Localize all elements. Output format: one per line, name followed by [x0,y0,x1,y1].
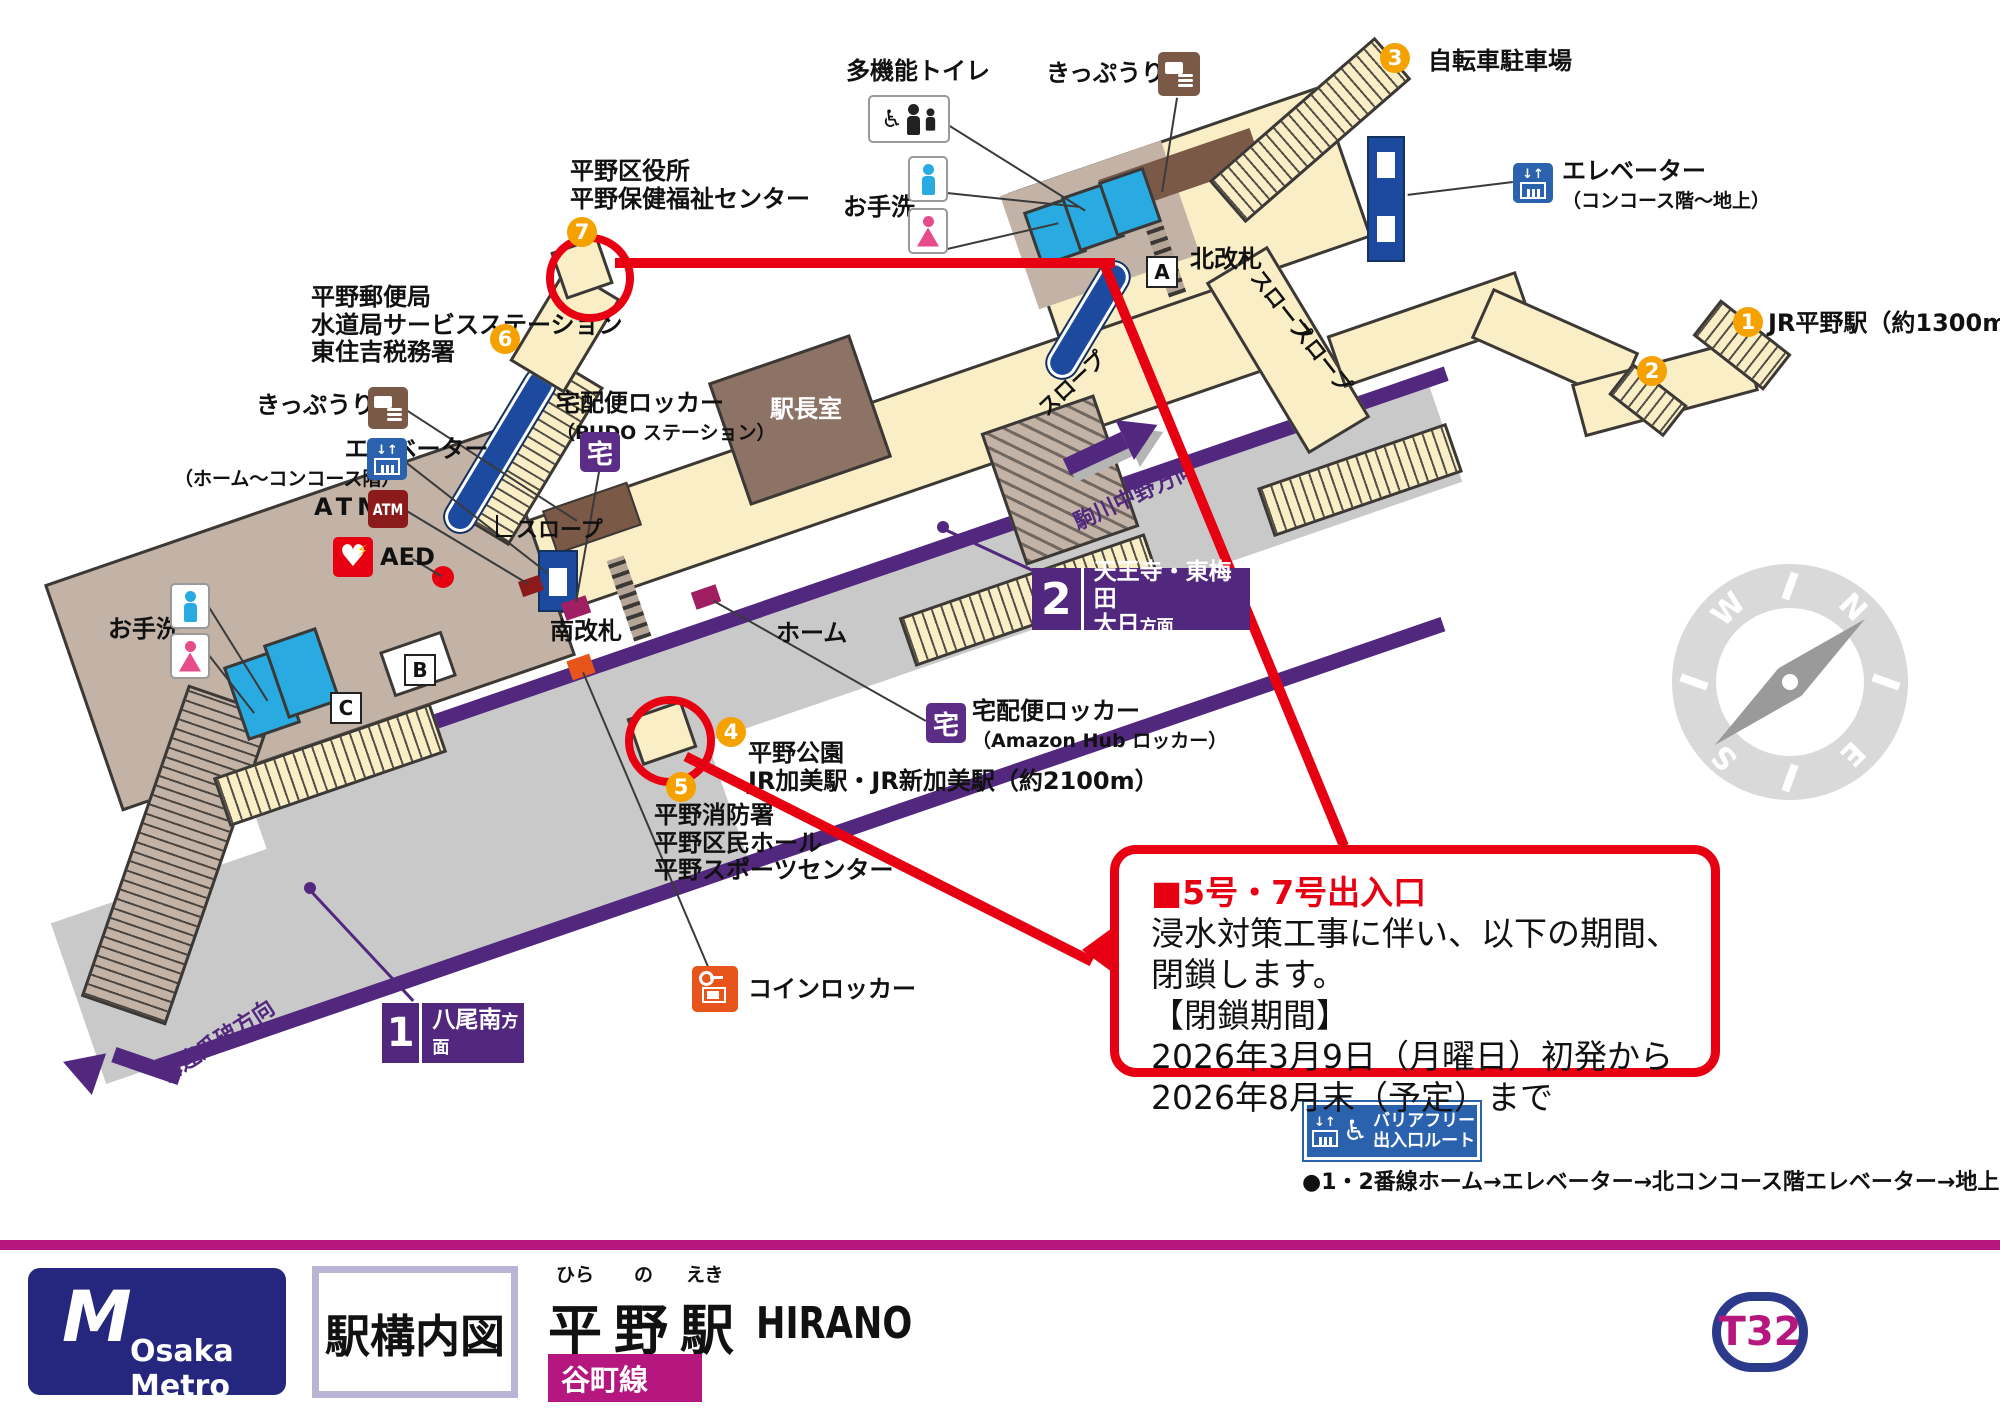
atm-icon-text: ATM [373,500,403,519]
amazon-locker-marker [691,584,721,609]
aed-icon: ♥ ⚡ [333,537,373,577]
exit5-line2: 平野区民ホール [654,829,822,857]
station-furigana-2: の [634,1260,653,1287]
ticket-machine-icon-north [1158,52,1200,96]
key-icon [699,971,714,986]
exit4-destinations: 平野公園 JR加美駅・JR新加美駅（約2100m） [748,740,1159,795]
elevator-glyph: ↓↑ [1312,1116,1338,1147]
exit6-line3: 東住吉税務署 [311,338,455,366]
gate-b-badge: B [404,654,436,686]
station-office-label: 駅長室 [770,396,842,424]
aed-marker [432,566,454,588]
track1-line1: 八尾南方面 [432,1007,524,1060]
closure-line-exit7 [615,258,1115,268]
notice-tail [1082,928,1112,972]
ticket-machine-icon-south [368,387,408,429]
leader-line [1408,181,1513,196]
pudo-line1: 宅配便ロッカー [556,389,724,417]
compass-needle-hub [1782,674,1798,690]
elevator-ne-line1: エレベーター [1562,157,1706,185]
exit7-circle: 7 [567,217,597,247]
compass-letter-n: N [1831,586,1874,629]
elevator-ne-label: エレベーター （コンコース階～地上） [1562,158,1770,213]
station-code-badge: T32 [1712,1292,1808,1372]
track2-number: 2 [1032,568,1084,630]
line-name-label: 谷町線 [548,1357,648,1399]
closure-notice-line: 【閉鎖期間】 [1151,995,1711,1036]
barrier-free-route-text: ●1・2番線ホーム→エレベーター→北コンコース階エレベーター→地上 [1302,1170,1999,1195]
elevator-window [1377,152,1395,178]
compass-tick [1781,763,1798,792]
restroom-female-icon-north [908,208,948,254]
exit5-closed-ring [625,696,715,786]
closure-notice-line: 2026年8月末（予定）まで [1151,1077,1711,1118]
compass-icon: N E S W [1672,564,1908,800]
elevator-icon-northeast: ↓↑ [1513,163,1553,203]
exit1-circle: 1 [1733,307,1763,337]
slope-elbow [496,515,512,537]
elevator-window [1377,216,1395,242]
exit4-line2: JR加美駅・JR新加美駅（約2100m） [748,767,1159,795]
suitcase-icon [702,987,726,1003]
exit1-destination-label: JR平野駅（約1300m） [1768,310,2000,338]
multi-toilet-icon: ♿ [868,95,950,143]
osaka-metro-m-icon: M [62,1276,132,1358]
compass-tick [1871,673,1900,690]
exit5-line1: 平野消防署 [654,801,774,829]
wheelchair-icon: ♿ [881,107,903,131]
exit6-line1: 平野郵便局 [311,283,431,311]
compass-letter-e: E [1833,734,1872,773]
ticket-card-glyph [1165,60,1193,88]
baby-icon [926,108,935,130]
station-furigana-3: えき [686,1260,723,1287]
coin-locker-icon [692,966,738,1012]
footer-separator [0,1240,2000,1250]
exit7-closed-ring [546,234,634,322]
elevator-glyph: ↓↑ [1520,168,1546,199]
closure-notice-line: 浸水対策工事に伴い、以下の期間、閉鎖します。 [1151,913,1711,995]
exit5-line3: 平野スポーツセンター [654,856,894,884]
female-icon [179,641,201,672]
closure-notice: ■5号・7号出入口 浸水対策工事に伴い、以下の期間、閉鎖します。 【閉鎖期間】 … [1110,845,1720,1077]
elevator-ne-line2: （コンコース階～地上） [1562,190,1770,212]
barrier-free-line2: 出入口ルート [1373,1131,1475,1151]
wheelchair-icon: ♿ [1343,1117,1368,1145]
track1-destination: 八尾南方面 [422,1003,524,1063]
pudo-locker-icon: 宅 [580,432,620,472]
multi-toilet-label: 多機能トイレ [846,58,990,86]
slope-label-4-text: スロープ [516,518,603,543]
doc-type-label: 駅構内図 [325,1300,505,1365]
slope-label-4: スロープ [496,512,603,544]
exit4-circle: 4 [716,717,746,747]
compass-tick [1781,571,1798,600]
exit7-line2: 平野保健福祉センター [570,185,810,213]
track2-line2: 大日方面 [1094,612,1250,638]
bicycle-parking-label: 自転車駐車場 [1428,48,1572,76]
exit6-circle: 6 [490,324,520,354]
track1-direction-box: 1 八尾南方面 [382,1003,524,1063]
exit2-circle: 2 [1637,356,1667,386]
elevator-glyph: ↓↑ [374,444,400,475]
taku-glyph: 宅 [933,705,959,742]
elevator-icon-southwest: ↓↑ [367,438,407,480]
track2-line1: 天王寺・東梅田 [1094,559,1250,612]
exit3-circle: 3 [1380,43,1410,73]
line-name-box: 谷町線 [548,1354,702,1402]
bolt-icon: ⚡ [357,541,368,560]
atm-icon: ATM [368,490,408,528]
exit7-line1: 平野区役所 [570,157,690,185]
doc-type-box: 駅構内図 [312,1266,518,1398]
elevator-window [549,568,567,596]
compass-tick [1679,673,1708,690]
restroom-male-icon-north [908,156,948,202]
ticket-card-glyph [374,394,402,422]
south-gate-label: 南改札 [550,618,622,646]
platform-label: ホーム [776,620,847,648]
osaka-metro-wordmark: Osaka Metro [130,1334,286,1404]
osaka-metro-logo: M Osaka Metro [28,1268,286,1395]
male-icon [184,591,197,622]
exit4-line1: 平野公園 [748,739,844,767]
station-code-label: T32 [1719,1309,1802,1355]
person-icon [907,104,920,135]
male-icon [922,164,935,195]
track1-number: 1 [382,1003,422,1063]
amazon-locker-icon: 宅 [926,703,966,743]
gate-c-badge: C [330,692,362,724]
taku-glyph: 宅 [587,434,613,471]
track2-direction-box: 2 天王寺・東梅田 大日方面 [1032,568,1250,630]
restroom-label-north: お手洗 [843,194,915,222]
station-romaji: HIRANO [756,1298,912,1349]
track2-destinations: 天王寺・東梅田 大日方面 [1084,568,1250,630]
coin-locker-label: コインロッカー [748,976,916,1004]
exit7-destinations: 平野区役所 平野保健福祉センター [570,158,810,213]
compass-letter-s: S [1705,737,1745,777]
north-gate-label: 北改札 [1190,246,1262,274]
amazon-line1: 宅配便ロッカー [972,697,1140,725]
restroom-male-icon-south [170,583,210,629]
aed-label: AED [380,544,435,572]
closure-notice-line: 2026年3月9日（月曜日）初発から [1151,1036,1711,1077]
station-furigana-1: ひら [556,1260,594,1287]
exit5-circle: 5 [666,772,696,802]
elevator-north-box [1367,136,1405,262]
restroom-female-icon-south [170,633,210,679]
female-icon [917,216,939,247]
closure-notice-title: ■5号・7号出入口 [1151,872,1711,913]
gate-a-badge: A [1146,256,1178,288]
